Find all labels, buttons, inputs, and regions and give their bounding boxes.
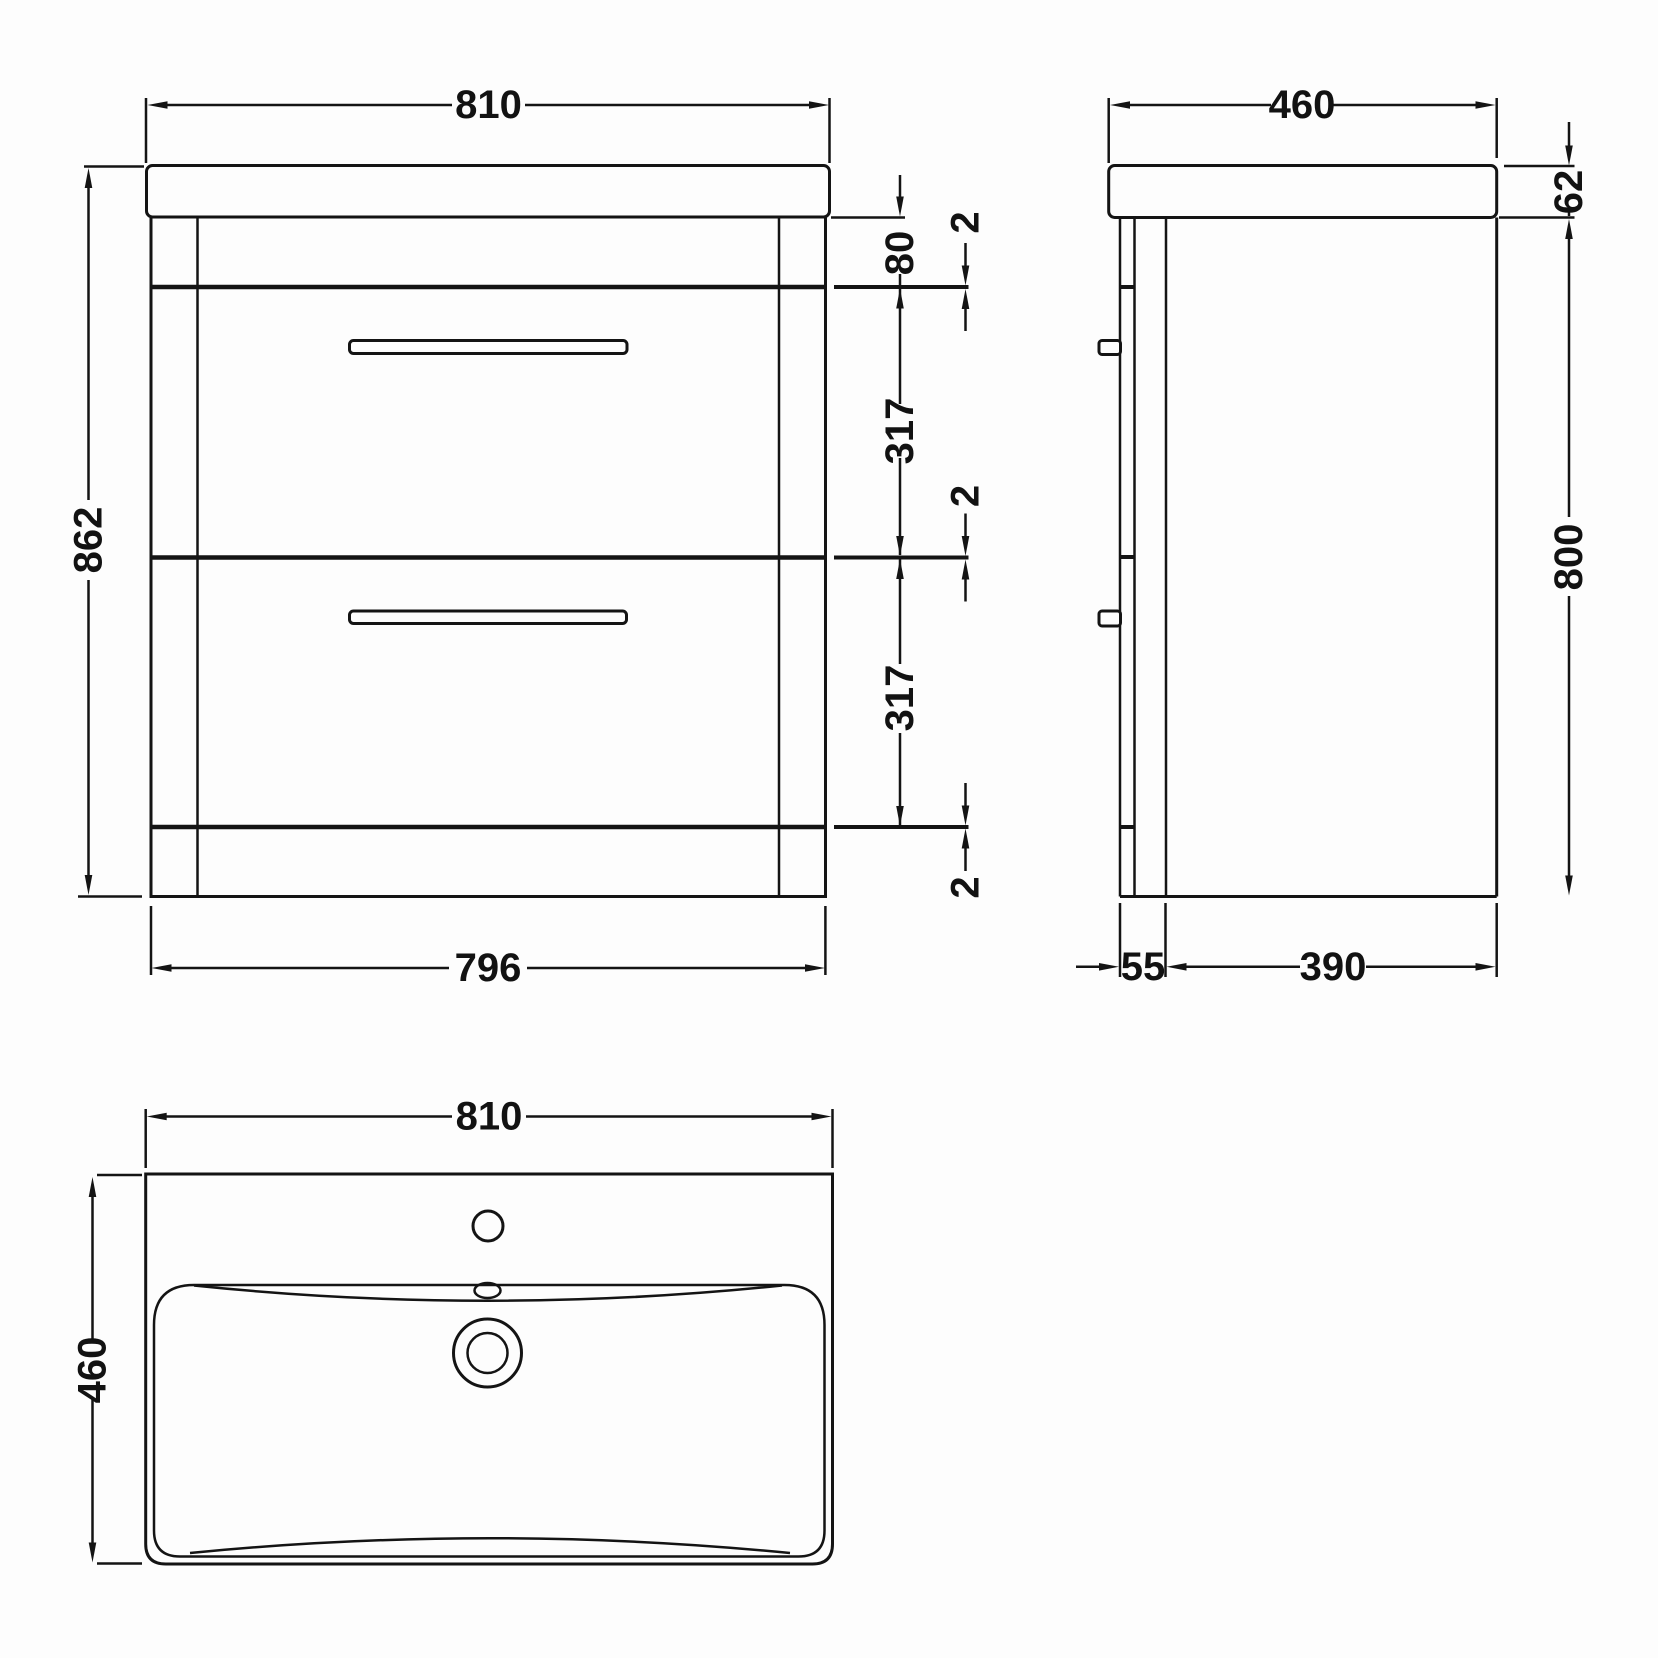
svg-text:80: 80	[878, 231, 922, 276]
svg-text:862: 862	[67, 507, 111, 574]
svg-text:810: 810	[455, 83, 522, 127]
svg-text:317: 317	[878, 665, 922, 732]
svg-text:460: 460	[71, 1337, 115, 1404]
svg-text:390: 390	[1300, 945, 1367, 989]
svg-text:2: 2	[944, 485, 988, 507]
svg-text:810: 810	[456, 1095, 523, 1139]
svg-text:800: 800	[1547, 524, 1591, 591]
svg-text:796: 796	[455, 946, 522, 990]
svg-text:55: 55	[1121, 945, 1166, 989]
svg-text:460: 460	[1269, 83, 1336, 127]
svg-text:2: 2	[944, 211, 988, 233]
svg-text:2: 2	[944, 876, 988, 898]
svg-text:317: 317	[878, 398, 922, 465]
svg-text:62: 62	[1547, 170, 1591, 215]
